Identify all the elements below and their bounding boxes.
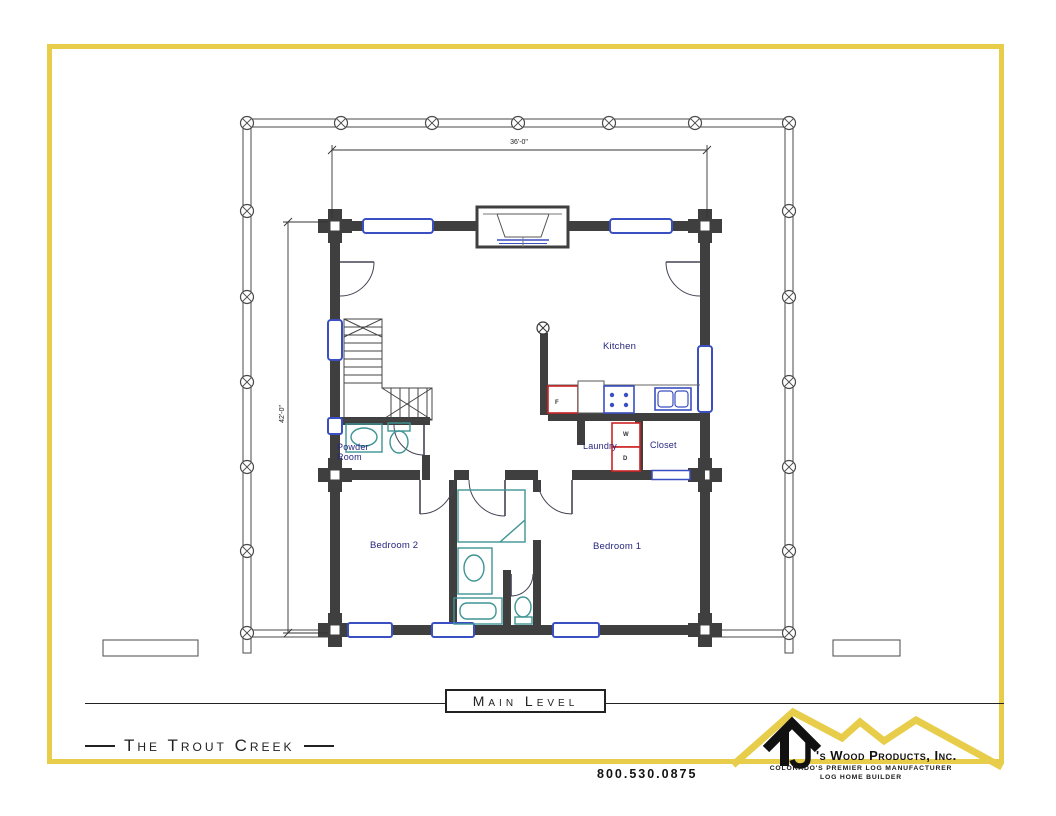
fireplace [477,207,568,247]
company-name: 's Wood Products, Inc. [816,748,957,763]
depth-dimension: 42'-0" [279,405,286,423]
refrigerator-label: F [555,400,559,406]
width-dimension: 36'-0" [489,139,549,146]
ceiling-light-icon [537,322,549,334]
laundry-label: Laundry [583,441,617,451]
exterior-walls [330,221,710,635]
dryer-label: D [623,456,627,462]
washer-label: W [623,432,629,438]
kitchen-label: Kitchen [603,341,636,352]
plan-title-text: The Trout Creek [124,736,295,756]
company-tagline-1: COLORADO'S PREMIER LOG MANUFACTURER [756,765,966,772]
bedroom2-label: Bedroom 2 [370,540,418,551]
title-dash-left [85,745,115,747]
level-title: Main Level [473,693,579,709]
windows [328,219,712,637]
log-corner-crosses [318,209,722,647]
plan-title: The Trout Creek [85,736,334,756]
level-title-box: Main Level [445,689,606,713]
interior-walls [340,333,705,625]
staircase [344,319,432,420]
company-tagline-2: LOG HOME BUILDER [756,774,966,781]
powder-room-label: Powder Room [337,442,369,462]
kitchen-fixtures [548,381,700,413]
bathroom-fixtures [454,490,532,624]
closet-label: Closet [650,440,677,450]
drawing-sheet: Kitchen Laundry Closet Powder Room Bedro… [0,0,1056,816]
deck-railing [103,119,900,656]
bedroom1-label: Bedroom 1 [593,541,641,552]
phone-number: 800.530.0875 [597,767,697,781]
title-dash-right [304,745,334,747]
